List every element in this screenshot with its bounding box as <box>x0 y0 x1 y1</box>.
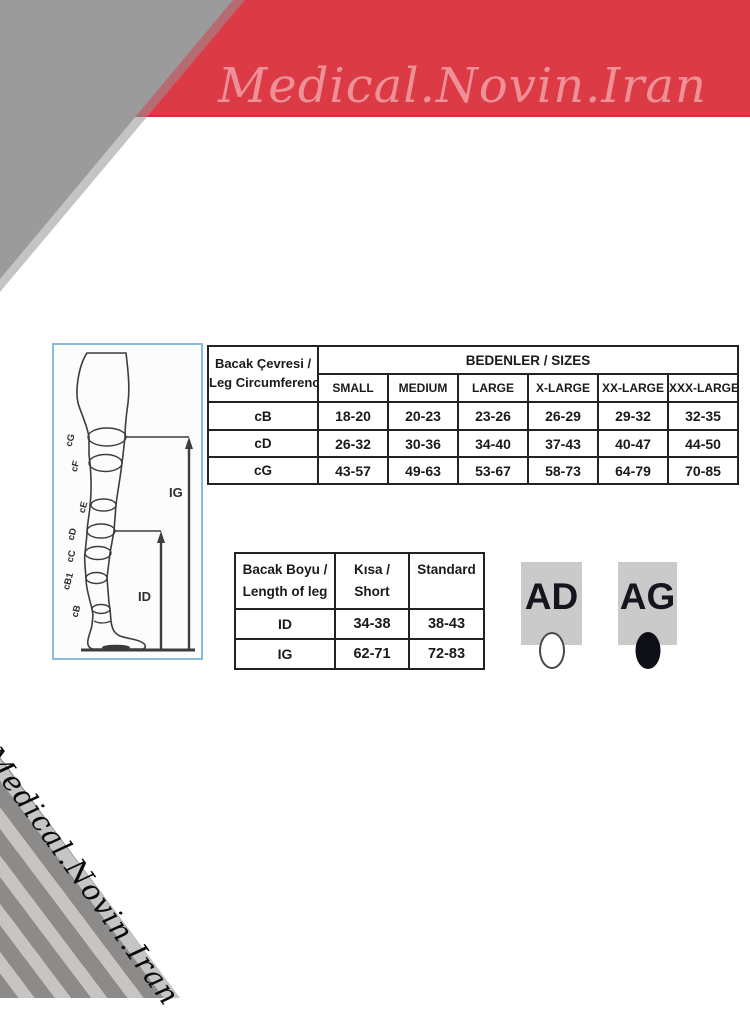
label-cG: cG <box>64 433 78 448</box>
ig-arrowhead <box>185 437 193 449</box>
circumference-line-cB1 <box>86 573 107 584</box>
label-cE: cE <box>77 500 91 514</box>
label-cC: cC <box>65 549 79 564</box>
table-row: cG 43-57 49-63 53-67 58-73 64-79 70-85 <box>208 457 738 484</box>
size-table: Bacak Çevresi / Leg Circumference BEDENL… <box>207 345 739 485</box>
col-header-standard: Standard <box>409 553 484 609</box>
badge-ad-label: AD <box>525 576 578 617</box>
col-header-x-large: X-LARGE <box>528 374 598 402</box>
corner-header-line1: Bacak Çevresi / <box>215 356 311 371</box>
cell-value: 58-73 <box>528 457 598 484</box>
cell-value: 49-63 <box>388 457 458 484</box>
cell-value: 72-83 <box>409 639 484 669</box>
cell-value: 34-38 <box>335 609 409 639</box>
length-table-header-row: Bacak Boyu / Length of leg Kısa / Short … <box>235 553 484 609</box>
row-label-IG: IG <box>235 639 335 669</box>
brand-title: Medical.Novin.Iran <box>175 58 750 114</box>
table-row: IG 62-71 72-83 <box>235 639 484 669</box>
short-header-line2: Short <box>354 584 389 599</box>
cell-value: 53-67 <box>458 457 528 484</box>
cell-value: 29-32 <box>598 402 668 430</box>
cell-value: 20-23 <box>388 402 458 430</box>
cell-value: 43-57 <box>318 457 388 484</box>
circumference-line-cB <box>92 605 110 614</box>
row-label-cD: cD <box>208 430 318 457</box>
cell-value: 34-40 <box>458 430 528 457</box>
open-toe-dot-icon <box>539 632 565 669</box>
leg-measurement-diagram: cG cF cE cD cC cB1 cB IG ID <box>52 343 203 660</box>
label-IG: IG <box>169 485 183 500</box>
badge-ad: AD <box>521 562 582 645</box>
table-row: cD 26-32 30-36 34-40 37-43 40-47 44-50 <box>208 430 738 457</box>
size-table-group-header-row: Bacak Çevresi / Leg Circumference BEDENL… <box>208 346 738 374</box>
length-table-corner-header: Bacak Boyu / Length of leg <box>235 553 335 609</box>
col-header-small: SMALL <box>318 374 388 402</box>
col-header-xx-large: XX-LARGE <box>598 374 668 402</box>
col-header-xxx-large: XXX-LARGE <box>668 374 738 402</box>
row-label-cB: cB <box>208 402 318 430</box>
circumference-line-cG <box>88 428 126 446</box>
cell-value: 18-20 <box>318 402 388 430</box>
cell-value: 38-43 <box>409 609 484 639</box>
cell-value: 26-32 <box>318 430 388 457</box>
cell-value: 64-79 <box>598 457 668 484</box>
row-label-cG: cG <box>208 457 318 484</box>
leg-outline <box>77 353 145 649</box>
scanned-size-chart-page: { "colors": { "banner_red": "#dc3b46", "… <box>0 0 750 998</box>
col-header-large: LARGE <box>458 374 528 402</box>
circumference-line-cF <box>89 455 122 472</box>
table-row: cB 18-20 20-23 23-26 26-29 29-32 32-35 <box>208 402 738 430</box>
badge-ag: AG <box>618 562 677 645</box>
cell-value: 62-71 <box>335 639 409 669</box>
length-header-line2: Length of leg <box>243 584 328 599</box>
label-cB1: cB1 <box>61 571 76 591</box>
row-label-ID: ID <box>235 609 335 639</box>
corner-header-line2: Leg Circumference <box>209 375 318 390</box>
sizes-group-header: BEDENLER / SIZES <box>318 346 738 374</box>
cell-value: 32-35 <box>668 402 738 430</box>
circumference-line-cC <box>85 547 111 560</box>
cell-value: 23-26 <box>458 402 528 430</box>
label-cF: cF <box>69 459 83 473</box>
cell-value: 30-36 <box>388 430 458 457</box>
label-cD: cD <box>66 527 80 542</box>
short-header-line1: Kısa / <box>354 562 390 577</box>
label-ID: ID <box>138 589 151 604</box>
badge-ag-label: AG <box>620 576 676 617</box>
leg-diagram-drawing: cG cF cE cD cC cB1 cB IG ID <box>54 345 201 658</box>
circumference-line-cD <box>87 524 115 538</box>
cell-value: 26-29 <box>528 402 598 430</box>
id-arrowhead <box>157 531 165 543</box>
circumference-line-cE <box>91 499 116 511</box>
cell-value: 40-47 <box>598 430 668 457</box>
col-header-medium: MEDIUM <box>388 374 458 402</box>
size-table-corner-header: Bacak Çevresi / Leg Circumference <box>208 346 318 402</box>
closed-toe-dot-icon <box>635 632 660 669</box>
length-header-line1: Bacak Boyu / <box>243 562 328 577</box>
label-cB: cB <box>70 604 84 619</box>
col-header-short: Kısa / Short <box>335 553 409 609</box>
cell-value: 70-85 <box>668 457 738 484</box>
cell-value: 37-43 <box>528 430 598 457</box>
cell-value: 44-50 <box>668 430 738 457</box>
boot-top-line <box>94 621 111 623</box>
table-row: ID 34-38 38-43 <box>235 609 484 639</box>
leg-length-table: Bacak Boyu / Length of leg Kısa / Short … <box>234 552 485 670</box>
